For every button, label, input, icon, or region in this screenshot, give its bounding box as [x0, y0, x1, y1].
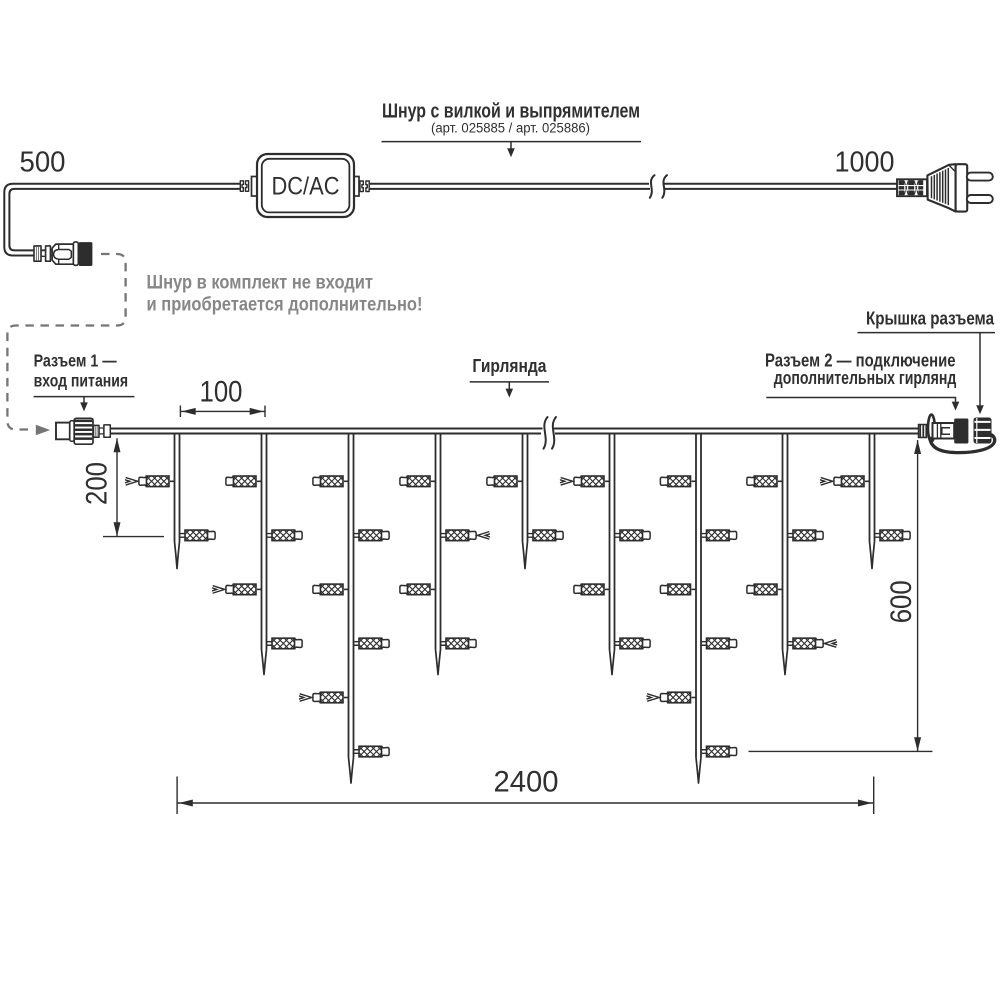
- svg-text:(арт. 025885 / арт. 025886): (арт. 025885 / арт. 025886): [431, 121, 590, 136]
- svg-text:2400: 2400: [494, 766, 559, 799]
- svg-text:200: 200: [81, 462, 114, 505]
- svg-text:дополнительных гирлянд: дополнительных гирлянд: [774, 368, 957, 388]
- svg-text:600: 600: [885, 580, 918, 623]
- svg-text:Гирлянда: Гирлянда: [472, 356, 547, 376]
- svg-text:Шнур с вилкой и выпрямителем: Шнур с вилкой и выпрямителем: [382, 101, 640, 123]
- svg-text:Крышка разъема: Крышка разъема: [866, 309, 995, 329]
- svg-text:Шнур в комплект не входит: Шнур в комплект не входит: [147, 272, 374, 294]
- svg-text:100: 100: [200, 376, 243, 409]
- svg-text:500: 500: [20, 147, 66, 179]
- svg-text:вход питания: вход питания: [34, 371, 129, 391]
- svg-text:1000: 1000: [835, 147, 895, 179]
- svg-text:Разъем 1 —: Разъем 1 —: [34, 350, 117, 370]
- svg-text:DC/AC: DC/AC: [272, 173, 340, 201]
- svg-text:и приобретается дополнительно!: и приобретается дополнительно!: [147, 294, 423, 316]
